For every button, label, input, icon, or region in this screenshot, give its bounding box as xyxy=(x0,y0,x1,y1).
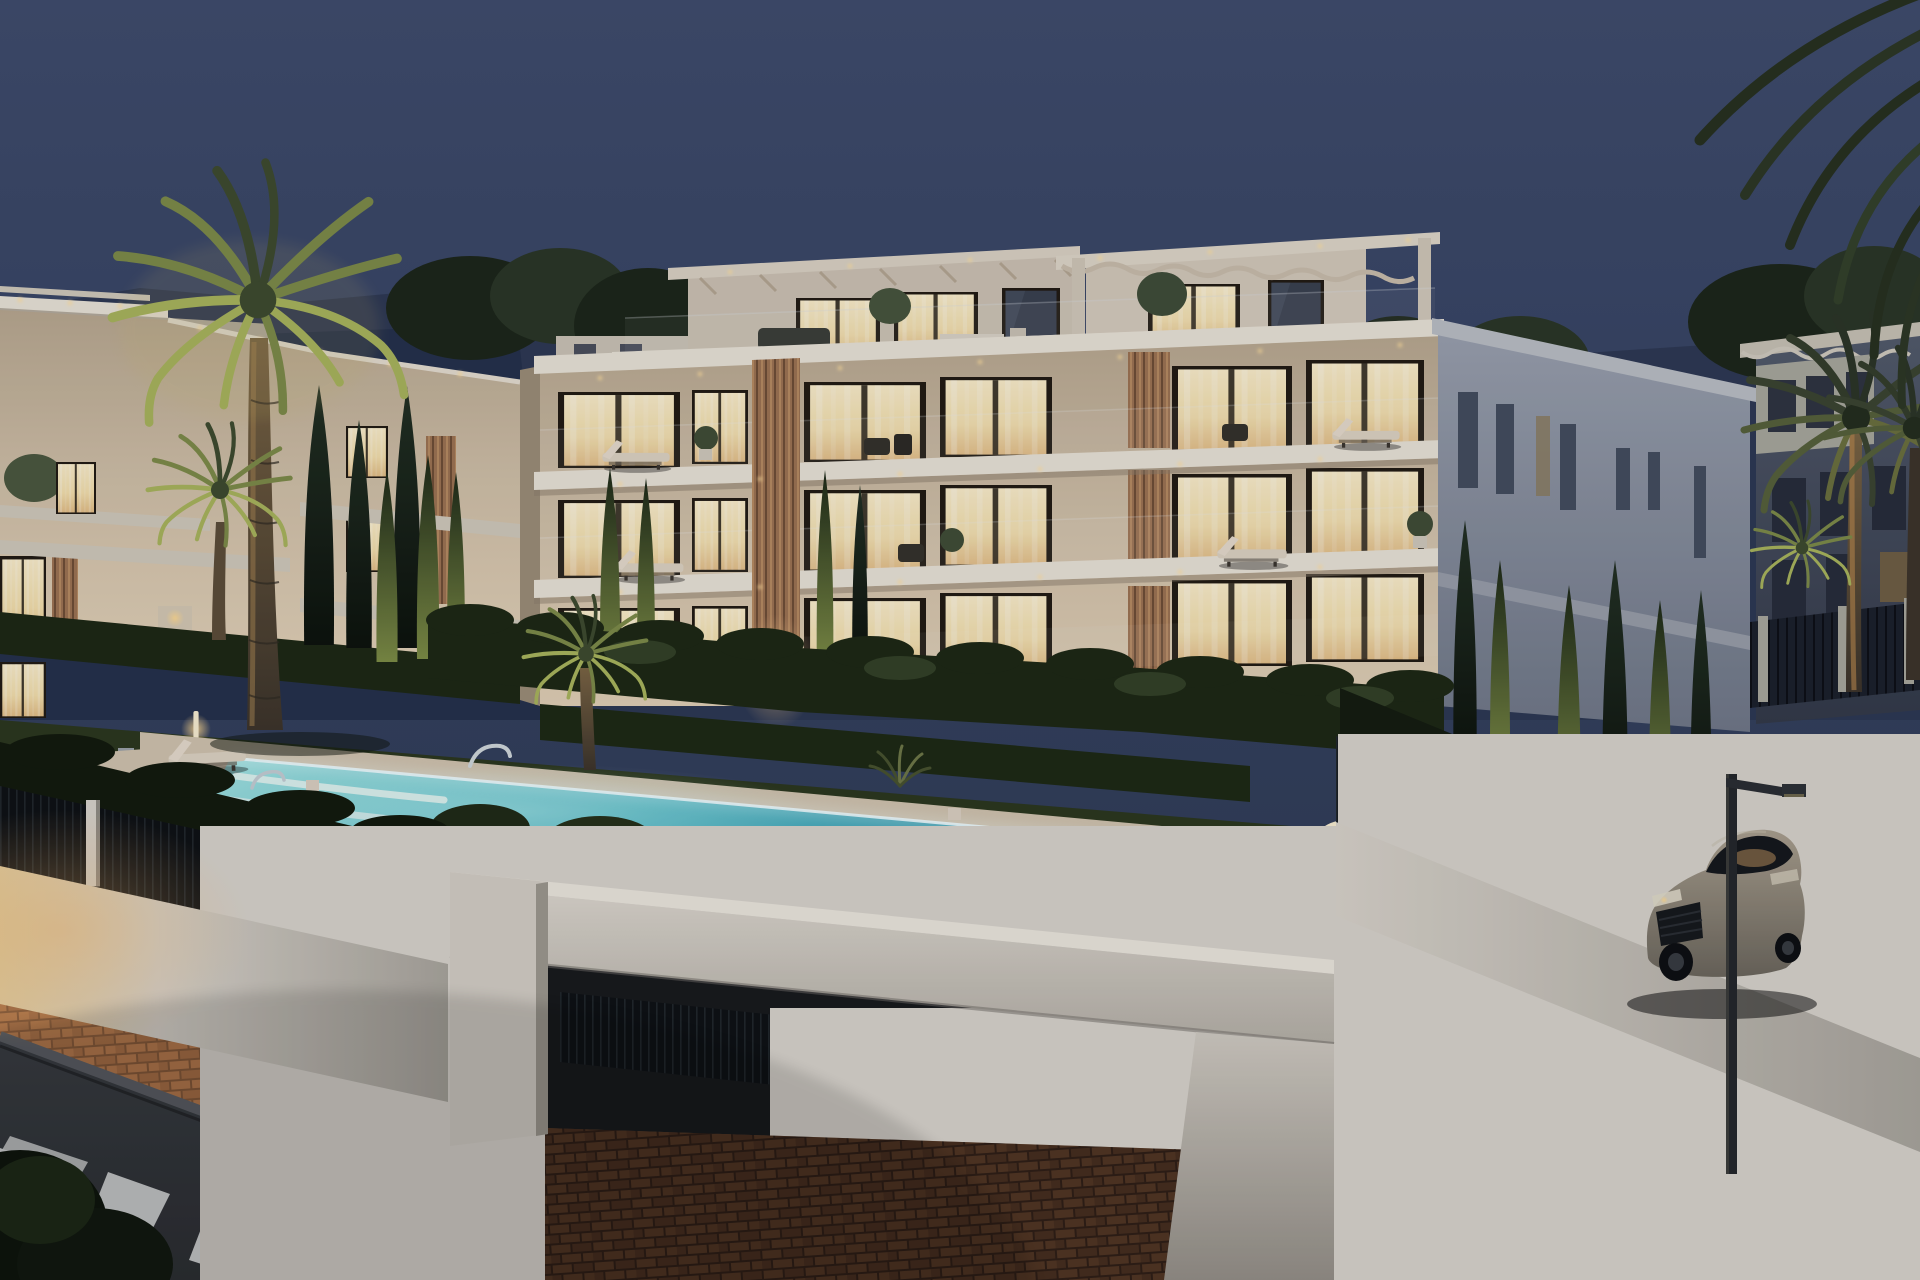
scene-canvas xyxy=(0,0,1920,1280)
vignette xyxy=(0,0,1920,1280)
architectural-render-image xyxy=(0,0,1920,1280)
